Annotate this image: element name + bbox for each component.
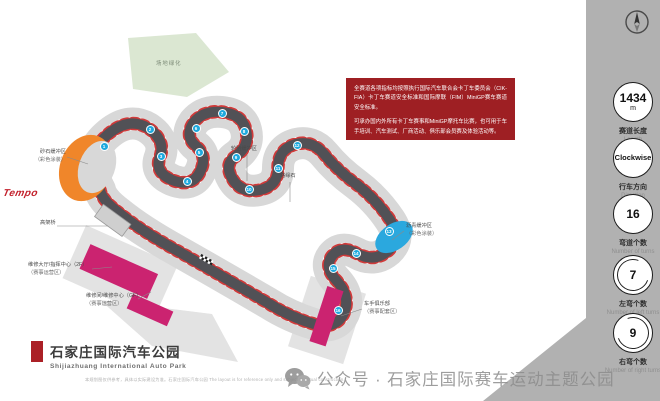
stat-circle: 9 — [613, 313, 653, 353]
stat-circle: 1434m — [613, 82, 653, 122]
stat-label-zh: 赛道长度 — [587, 126, 660, 136]
title-accent-square — [31, 341, 43, 362]
watermark: 公众号 · 石家庄国际赛车运动主题公园 — [284, 366, 615, 390]
turn-marker-3: 3 — [157, 152, 166, 161]
turn-marker-14: 14 — [352, 249, 361, 258]
stat-value: 1434 — [620, 92, 647, 104]
turn-marker-6: 6 — [192, 124, 201, 133]
turn-marker-12: 12 — [293, 141, 302, 150]
stat-circle: 16 — [613, 194, 653, 234]
wechat-icon — [284, 367, 311, 390]
clockwise-arrow-icon — [612, 312, 655, 355]
stat-value: Clockwise — [615, 154, 652, 162]
turn-marker-16: 16 — [334, 306, 343, 315]
turn-marker-8: 8 — [240, 127, 249, 136]
stat-label-zh: 左弯个数 — [587, 299, 660, 309]
turn-marker-2: 2 — [146, 125, 155, 134]
stat-circle: 7 — [613, 255, 653, 295]
park-title-en: Shijiazhuang International Auto Park — [50, 363, 186, 370]
turn-marker-13: 13 — [385, 227, 394, 236]
stat-value: 16 — [626, 208, 639, 220]
turn-marker-1: 1 — [100, 142, 109, 151]
title-block: 石家庄国际汽车公园 Shijiazhuang International Aut… — [31, 341, 186, 370]
stat-unit: m — [630, 105, 636, 112]
turn-marker-15: 15 — [329, 264, 338, 273]
stat-block-2: Clockwise行车方向Direction — [587, 138, 660, 199]
turn-marker-5: 5 — [195, 148, 204, 157]
stat-block-5: 9右弯个数Number of right turns — [587, 313, 660, 374]
watermark-text: 公众号 · 石家庄国际赛车运动主题公园 — [317, 366, 615, 390]
turn-marker-10: 10 — [245, 185, 254, 194]
stat-label-zh: 行车方向 — [587, 182, 660, 192]
stat-block-3: 16弯道个数Number of turns — [587, 194, 660, 255]
slide-canvas: Tempo 全赛道各项指标均按照执行国际汽车联合会卡丁车委员会（CIK-FIA）… — [0, 0, 660, 401]
turn-marker-11: 11 — [274, 164, 283, 173]
stat-block-1: 1434m赛道长度Length — [587, 82, 660, 143]
stat-label-zh: 弯道个数 — [587, 238, 660, 248]
turn-marker-7: 7 — [218, 109, 227, 118]
turn-marker-9: 9 — [232, 153, 241, 162]
stat-circle: Clockwise — [613, 138, 653, 178]
stat-block-4: 7左弯个数Number of left turns — [587, 255, 660, 316]
turn-marker-4: 4 — [183, 177, 192, 186]
counterclockwise-arrow-icon — [612, 254, 655, 297]
park-title-zh: 石家庄国际汽车公园 — [50, 341, 186, 361]
